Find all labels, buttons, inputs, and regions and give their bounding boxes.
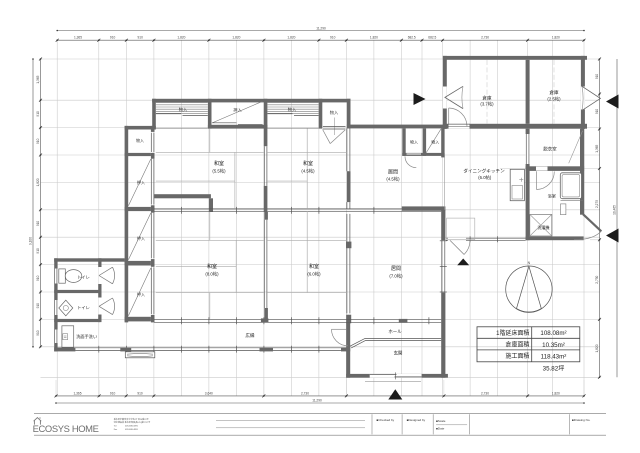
svg-text:(4.5帖): (4.5帖) [301, 168, 315, 175]
svg-text:1,365: 1,365 [36, 75, 40, 83]
svg-text:11,290: 11,290 [312, 399, 322, 403]
svg-text:和室: 和室 [214, 160, 224, 167]
svg-text:682.5: 682.5 [408, 36, 416, 40]
svg-text:1,365: 1,365 [595, 144, 599, 152]
svg-text:1,365: 1,365 [74, 391, 82, 395]
svg-text:トイレ: トイレ [77, 305, 90, 310]
svg-text:トイレ: トイレ [77, 274, 90, 279]
svg-text:11,290: 11,290 [316, 26, 326, 30]
svg-text:910: 910 [138, 36, 144, 40]
svg-text:1,820: 1,820 [552, 36, 560, 40]
svg-text:1,820: 1,820 [552, 391, 560, 395]
svg-text:910: 910 [36, 138, 40, 144]
svg-text:ECOSYS HOME: ECOSYS HOME [33, 423, 99, 434]
svg-text:物入: 物入 [136, 137, 144, 143]
svg-text:1,820: 1,820 [232, 36, 240, 40]
svg-text:682.5: 682.5 [428, 36, 436, 40]
svg-text:35.82坪: 35.82坪 [543, 365, 565, 373]
svg-text:物入: 物入 [410, 139, 418, 145]
svg-text:(4.5帖): (4.5帖) [386, 176, 400, 183]
svg-text:(5.5帖): (5.5帖) [212, 168, 226, 175]
svg-text:■Checked by: ■Checked by [377, 418, 395, 422]
svg-text:(3.7帖): (3.7帖) [480, 101, 494, 108]
svg-text:物入: 物入 [179, 106, 188, 113]
svg-text:3,640: 3,640 [205, 391, 213, 395]
svg-text:910: 910 [36, 330, 40, 336]
svg-text:押入: 押入 [137, 235, 145, 241]
svg-text:(8.0帖): (8.0帖) [205, 271, 219, 278]
svg-text:1階延床面積: 1階延床面積 [496, 329, 529, 337]
svg-text:■Date: ■Date [436, 427, 444, 431]
svg-text:(7.0帖): (7.0帖) [389, 272, 403, 279]
svg-text:和室: 和室 [303, 160, 313, 167]
svg-text:物入: 物入 [288, 106, 297, 113]
svg-text:(2.5帖): (2.5帖) [547, 95, 561, 102]
svg-text:028-688-5895: 028-688-5895 [125, 426, 139, 428]
svg-text:910: 910 [595, 109, 599, 115]
svg-text:■Scale: ■Scale [436, 419, 446, 423]
svg-text:洗濯機: 洗濯機 [538, 224, 550, 230]
svg-text:2,730: 2,730 [595, 275, 599, 283]
svg-text:2,730: 2,730 [481, 36, 489, 40]
svg-text:(6.0帖): (6.0帖) [478, 174, 492, 181]
svg-text:洗面手洗い: 洗面手洗い [76, 333, 97, 340]
svg-text:910: 910 [36, 303, 40, 309]
svg-text:押入: 押入 [137, 291, 145, 297]
svg-text:脱衣室: 脱衣室 [543, 145, 557, 152]
svg-text:広縁: 広縁 [245, 332, 255, 339]
svg-text:910: 910 [36, 275, 40, 281]
svg-text:■Designed by: ■Designed by [407, 418, 426, 422]
svg-text:2,275: 2,275 [595, 200, 599, 208]
svg-text:108.08m²: 108.08m² [540, 330, 566, 337]
svg-text:1,820: 1,820 [370, 36, 378, 40]
svg-text:居間: 居間 [391, 266, 401, 272]
svg-text:910: 910 [36, 248, 40, 254]
svg-text:押入: 押入 [137, 179, 145, 185]
svg-text:居間: 居間 [388, 169, 398, 175]
svg-text:■Drawing No.: ■Drawing No. [572, 418, 590, 422]
svg-text:1,820: 1,820 [595, 344, 599, 352]
svg-text:和室: 和室 [207, 263, 217, 270]
svg-text:9,100: 9,100 [29, 237, 33, 245]
svg-text:2,730: 2,730 [481, 391, 489, 395]
svg-text:倉庫: 倉庫 [549, 89, 559, 96]
svg-text:910: 910 [595, 74, 599, 80]
svg-text:910: 910 [36, 111, 40, 117]
svg-text:1,820: 1,820 [287, 36, 295, 40]
svg-text:物入: 物入 [431, 139, 439, 145]
svg-text:910: 910 [137, 391, 143, 395]
svg-text:10,465: 10,465 [613, 205, 617, 215]
svg-text:ホール: ホール [388, 329, 402, 334]
svg-text:押入: 押入 [233, 107, 242, 114]
svg-text:2,730: 2,730 [301, 391, 309, 395]
svg-text:10.35m²: 10.35m² [542, 342, 565, 349]
svg-text:910: 910 [330, 36, 336, 40]
svg-text:和室: 和室 [309, 263, 319, 270]
svg-text:ダイニングキッチン: ダイニングキッチン [463, 167, 505, 174]
svg-text:(6.0帖): (6.0帖) [307, 271, 321, 278]
svg-text:1,820: 1,820 [36, 178, 40, 186]
svg-text:玄関: 玄関 [394, 349, 403, 356]
svg-text:施工面積: 施工面積 [505, 352, 529, 360]
svg-text:倉庫: 倉庫 [482, 94, 492, 101]
svg-text:浴室: 浴室 [548, 193, 556, 200]
svg-text:028-688-4895: 028-688-4895 [125, 429, 139, 431]
svg-text:1,820: 1,820 [177, 36, 185, 40]
svg-text:物入: 物入 [330, 109, 339, 116]
svg-text:910: 910 [110, 36, 116, 40]
svg-text:1,365: 1,365 [74, 36, 82, 40]
svg-text:910: 910 [36, 221, 40, 227]
svg-text:118.43m²: 118.43m² [541, 353, 567, 360]
svg-text:倉庫面積: 倉庫面積 [505, 341, 529, 349]
svg-text:910: 910 [110, 391, 116, 395]
